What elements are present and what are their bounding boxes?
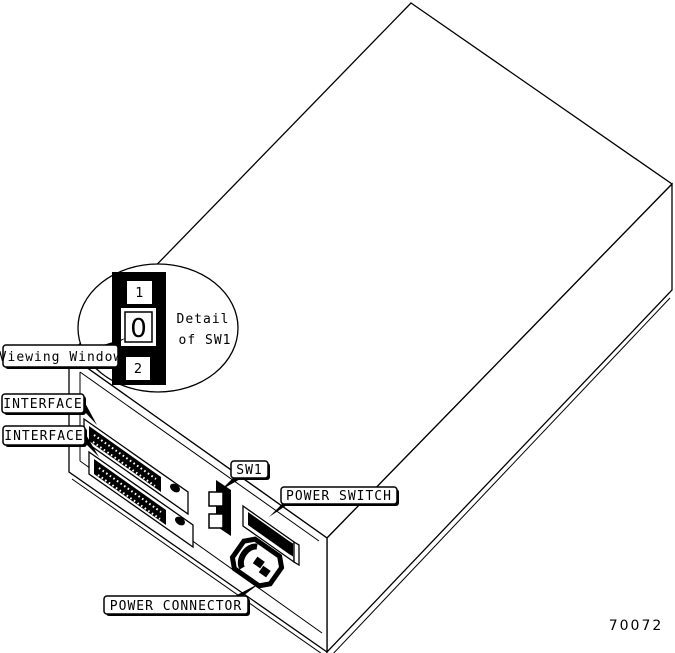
sw1-button-lower bbox=[209, 514, 223, 528]
sw1-button-upper bbox=[209, 492, 223, 506]
switch-position-0: 0 bbox=[130, 314, 147, 344]
power-switch-rocker-side bbox=[289, 541, 293, 557]
switch-position-2: 2 bbox=[134, 362, 142, 377]
balloon-caption-line2: of SW1 bbox=[179, 333, 232, 348]
power-connector-label-text: POWER CONNECTOR bbox=[110, 599, 242, 614]
rear-panel-diagram: 1 0 2 Detail of SW1 Viewing Window INTER… bbox=[0, 0, 675, 653]
sw1-label-text: SW1 bbox=[236, 463, 262, 478]
viewing-window-label-text: Viewing Window bbox=[0, 350, 122, 365]
interface-2-label-text: INTERFACE bbox=[4, 429, 83, 444]
switch-position-1: 1 bbox=[135, 286, 143, 301]
interface-1-label-text: INTERFACE bbox=[3, 397, 82, 412]
sw1-detail-balloon: 1 0 2 Detail of SW1 bbox=[78, 264, 238, 392]
balloon-caption-line1: Detail bbox=[177, 312, 230, 327]
power-switch-label-text: POWER SWITCH bbox=[286, 489, 392, 504]
figure-number: 70072 bbox=[609, 618, 664, 634]
power-switch-frame-side bbox=[294, 542, 299, 565]
